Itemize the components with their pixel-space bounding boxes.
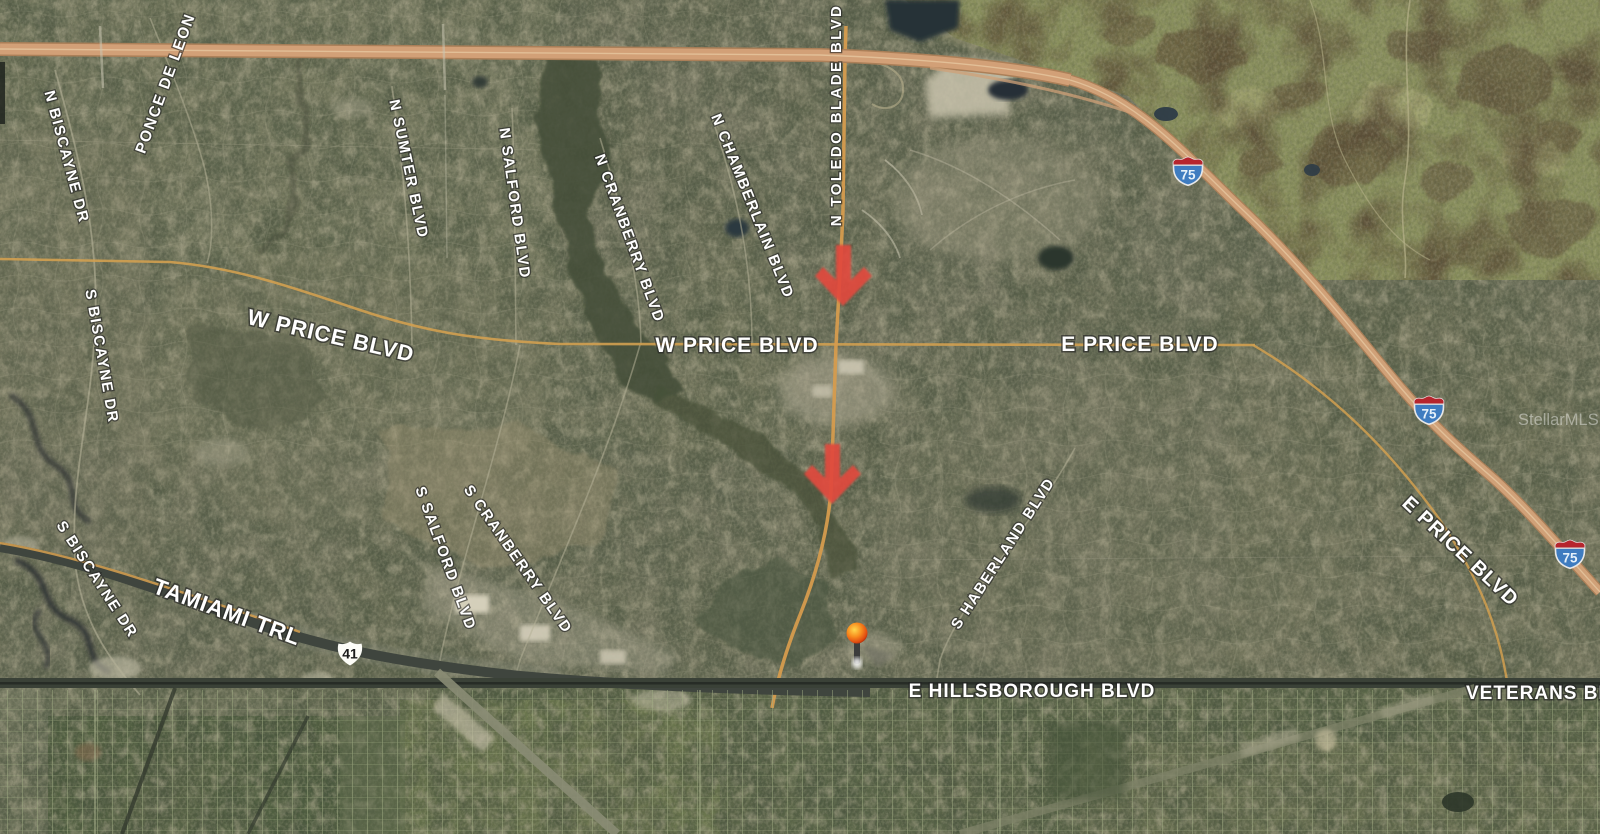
svg-text:41: 41 (342, 646, 358, 662)
svg-text:E HILLSBOROUGH BLVD: E HILLSBOROUGH BLVD (909, 681, 1156, 702)
svg-text:VETERANS BL: VETERANS BL (1466, 683, 1600, 704)
svg-text:N TOLEDO BLADE BLVD: N TOLEDO BLADE BLVD (828, 4, 845, 227)
svg-text:StellarMLS: StellarMLS (1518, 411, 1599, 429)
svg-text:W PRICE BLVD: W PRICE BLVD (655, 334, 818, 357)
svg-text:E PRICE BLVD: E PRICE BLVD (1061, 333, 1218, 356)
